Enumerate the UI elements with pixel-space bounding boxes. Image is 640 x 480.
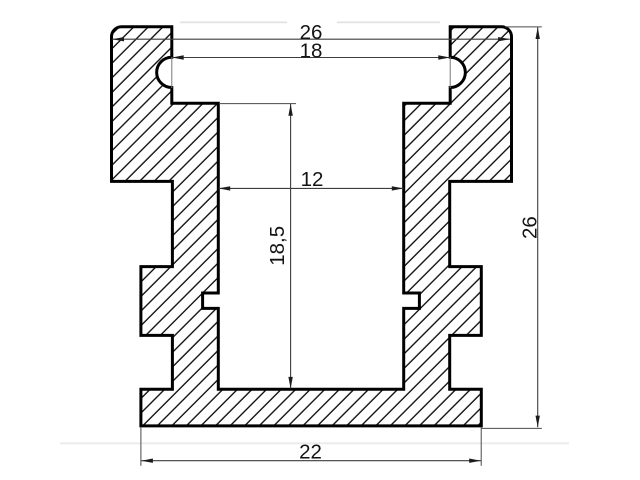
svg-text:12: 12 (301, 168, 324, 191)
svg-text:18: 18 (300, 40, 323, 63)
svg-text:22: 22 (299, 440, 322, 463)
svg-text:26: 26 (518, 216, 541, 239)
svg-text:18,5: 18,5 (266, 226, 289, 266)
